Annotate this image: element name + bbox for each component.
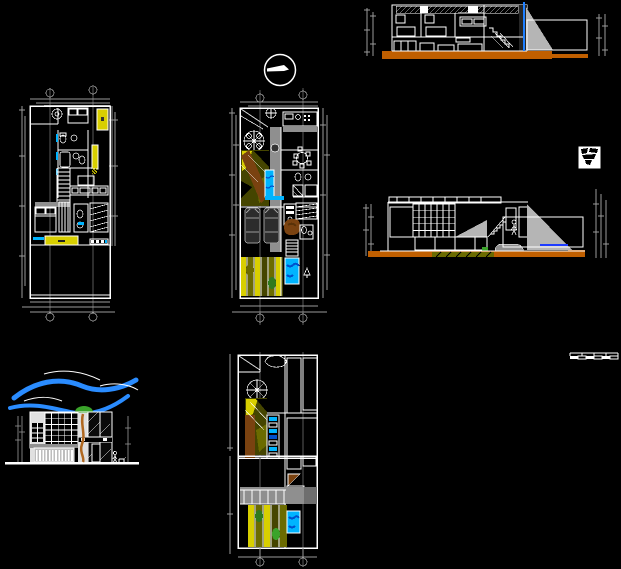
section-furniture — [394, 13, 513, 52]
longitudinal-section — [362, 184, 621, 264]
living-room — [70, 176, 108, 195]
planting — [482, 247, 488, 251]
wind-ribbons-blue — [10, 371, 138, 413]
interior-walls — [267, 355, 317, 458]
graphic-scale-bar — [569, 351, 619, 361]
garden-stripes — [241, 257, 283, 296]
tree-rosette — [244, 131, 264, 151]
bathroom-2 — [60, 152, 85, 167]
cad-canvas — [0, 0, 621, 569]
window-grid — [45, 413, 78, 447]
closet-yellow-2 — [92, 145, 98, 169]
ladder-bridge — [286, 240, 298, 256]
planter-stripes — [248, 505, 287, 547]
front-elevation — [4, 368, 144, 470]
ramp-zone — [245, 398, 267, 458]
upper-floor-plan-left — [14, 86, 120, 332]
axis-bubbles-top — [256, 91, 307, 102]
dimension-chain-left — [364, 8, 376, 56]
curtain-wall-grid — [413, 204, 455, 237]
ramp-wedge-brown — [288, 474, 300, 486]
stairs — [296, 203, 317, 219]
dimension-post-left — [227, 456, 233, 554]
small-bath — [300, 225, 313, 239]
bathroom-3 — [74, 204, 88, 232]
pine-tree-icon — [304, 268, 310, 278]
dimension-chain-left — [363, 204, 374, 256]
axis-lines — [50, 87, 93, 314]
sill-cyan — [33, 237, 44, 240]
laundry — [52, 108, 88, 123]
transverse-section — [363, 0, 621, 70]
human-figure — [113, 452, 117, 463]
ground-line — [5, 462, 139, 465]
north-arrow — [259, 51, 301, 89]
ramp-wedge — [527, 204, 572, 250]
ramp-beam-brown — [245, 415, 255, 458]
kitchen — [283, 112, 317, 132]
garage-door — [34, 448, 74, 462]
dimension-chain-right — [596, 14, 608, 56]
dog-figure — [119, 457, 126, 462]
terrace-deck — [240, 487, 317, 504]
bathroom-1 — [60, 133, 77, 143]
sheet-logo — [578, 146, 602, 170]
fan-icon — [266, 108, 276, 118]
sofa — [78, 176, 94, 185]
door — [519, 207, 528, 237]
dimension-post-left — [227, 354, 233, 451]
tree-canopy-brown — [284, 219, 300, 235]
rear-pool — [285, 258, 299, 284]
ground-band — [382, 51, 552, 59]
third-level-plan — [226, 350, 326, 462]
side-table — [271, 144, 279, 152]
hatch-square — [92, 169, 97, 174]
bar-counter — [267, 415, 279, 458]
fan-rosette — [247, 380, 267, 400]
roof-terrace-plan — [226, 454, 326, 569]
tile-roof-strips — [287, 358, 317, 456]
section-building — [392, 5, 527, 52]
washing-machine-icon — [52, 109, 62, 119]
pool — [265, 170, 274, 197]
hatched-railing — [415, 237, 487, 250]
axis-bubbles-top — [46, 86, 97, 97]
soil-patch — [432, 252, 494, 257]
car-plan — [245, 208, 260, 243]
car-plan — [264, 208, 279, 243]
stairs — [57, 168, 70, 203]
pond — [287, 511, 300, 533]
facade — [5, 412, 139, 465]
dimension-chain-right — [593, 189, 609, 258]
bedroom — [35, 202, 70, 232]
ramp-wedge — [526, 7, 553, 50]
axis-bubbles-bottom — [256, 314, 307, 322]
tv-cabinet — [70, 186, 108, 195]
ground-floor-plan-center — [228, 85, 330, 337]
cloud-sketch — [265, 355, 286, 367]
room-topleft — [239, 355, 260, 372]
section-building — [388, 197, 535, 257]
hatched-panel — [390, 207, 413, 237]
entry — [241, 109, 268, 129]
bed — [35, 207, 56, 232]
north-arrow-needle — [267, 65, 289, 72]
tile-roof-strips — [287, 456, 316, 469]
bathroom — [293, 173, 317, 196]
dimension-chain-bottom — [238, 548, 317, 566]
axis-bubbles-bottom — [46, 313, 97, 321]
roof-hatch-band — [396, 6, 518, 13]
water-channel — [265, 196, 284, 200]
